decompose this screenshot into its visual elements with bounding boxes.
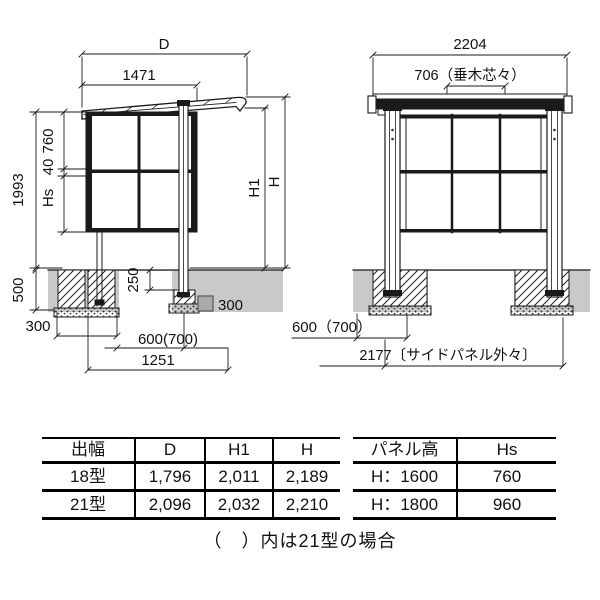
cell-model-18: 18型 [42,462,135,490]
dim-706-rafter: 706（垂木芯々） [414,67,525,84]
dim-250: 250 [125,267,142,292]
dim-1993: 1993 [10,173,27,206]
front-view-drawing: 2204 706（垂木芯々） 600（700） 2177〔サイドパネル外々〕 [292,36,590,369]
dim-40: 40 [40,159,57,176]
table-row-18: 18型 1,796 2,011 2,189 [42,462,340,490]
dim-h: H [266,177,283,188]
front-posts [383,106,564,297]
cell-h1-21: 2,032 [205,490,273,518]
dim-footing-300: 300 [218,297,243,314]
col-header-panel-height: パネル高 [353,438,457,462]
front-panel-grid [400,115,547,233]
spec-tables: 出幅 D H1 H 18型 1,796 2,011 2,189 21型 2,09… [42,437,556,520]
dim-depth-d: D [159,36,170,53]
dim-2177-side-panel: 2177〔サイドパネル外々〕 [359,347,536,364]
dim-2204: 2204 [453,36,486,53]
technical-drawing: 300 [0,0,600,430]
panel-header-row: パネル高 Hs [353,438,556,462]
size-header-row: 出幅 D H1 H [42,438,340,462]
col-header-d: D [135,438,205,462]
footing-size-symbol: 300 [198,296,243,314]
dim-600-700: 600(700) [138,331,198,348]
cell-model-21: 21型 [42,490,135,518]
col-header-h1: H1 [205,438,273,462]
dim-300-wall: 300 [25,318,50,335]
col-header-h: H [273,438,340,462]
col-header-demand-width: 出幅 [42,438,135,462]
spec-table-size: 出幅 D H1 H 18型 1,796 2,011 2,189 21型 2,09… [42,437,340,520]
cell-d-18: 1,796 [135,462,205,490]
table-row-21: 21型 2,096 2,032 2,210 [42,490,340,518]
cell-h1600: H：1600 [353,462,457,490]
dim-h1: H1 [246,178,263,197]
cell-h-18: 2,189 [273,462,340,490]
dim-1251: 1251 [141,352,174,369]
table-row-h1600: H：1600 760 [353,462,556,490]
dim-hs: Hs [40,189,57,207]
cell-hs-760: 760 [457,462,556,490]
spec-table-panel-height: パネル高 Hs H：1600 760 H：1800 960 [353,437,556,520]
cell-d-21: 2,096 [135,490,205,518]
cell-h1800: H：1800 [353,490,457,518]
cell-h1-18: 2,011 [205,462,273,490]
dimension-diagram-page: 300 [0,0,600,600]
side-main-post [177,100,190,297]
dim-500: 500 [10,277,27,302]
dim-760: 760 [40,128,57,153]
col-header-hs: Hs [457,438,556,462]
dim-1471: 1471 [122,67,155,84]
table-row-h1800: H：1800 960 [353,490,556,518]
cell-hs-960: 960 [457,490,556,518]
footnote-21-type-note: （ ）内は21型の場合 [0,527,600,553]
side-view-drawing: 300 [10,36,290,373]
cell-h-21: 2,210 [273,490,340,518]
dim-600-700-front: 600（700） [292,319,372,336]
